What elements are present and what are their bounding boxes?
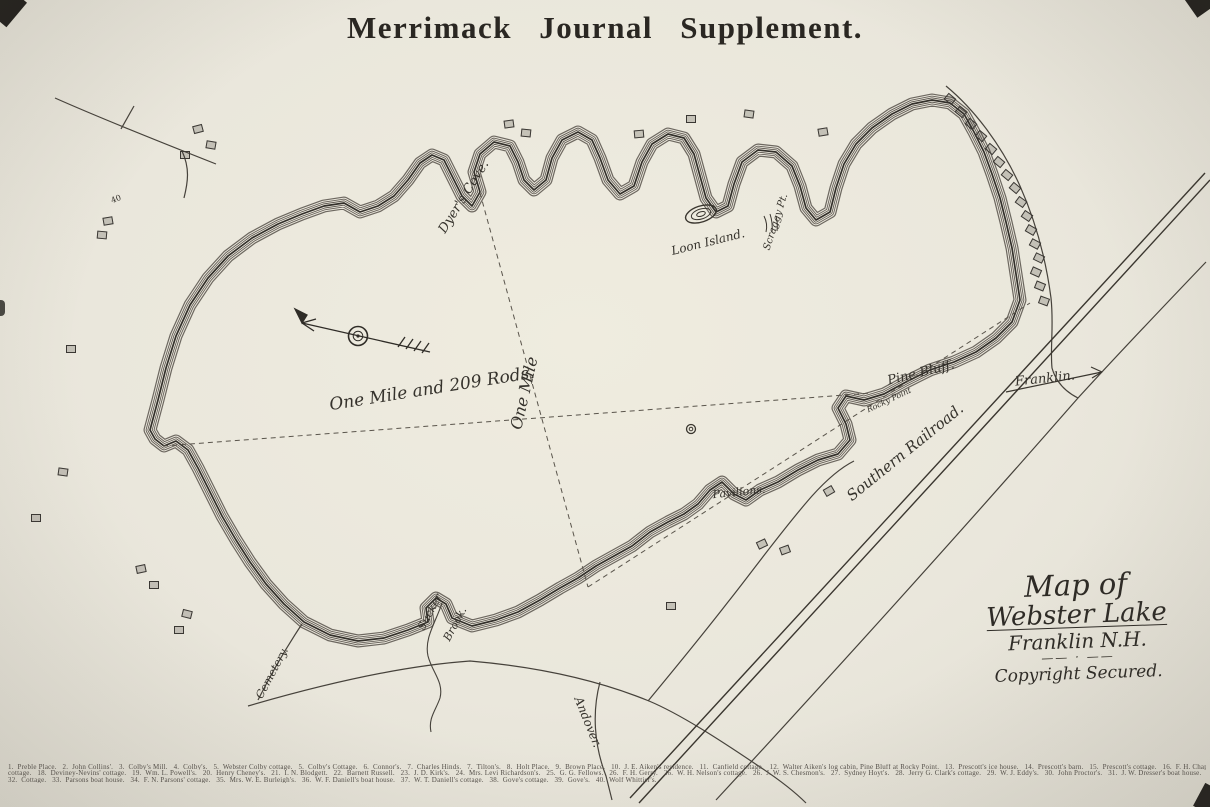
lake-outline <box>150 100 1020 641</box>
cartouche: Map of Webster Lake Franklin N.H. —— · —… <box>950 566 1204 691</box>
map-page: Merrimack Journal Supplement. Dyer's Cov… <box>0 0 1210 807</box>
building-marker <box>174 626 184 634</box>
building-marker <box>97 231 108 240</box>
building-marker <box>57 467 68 476</box>
building-marker <box>686 115 696 123</box>
building-marker <box>666 602 676 610</box>
building-marker <box>66 345 76 353</box>
building-marker <box>521 128 532 137</box>
building-marker <box>31 514 41 522</box>
compass-rose <box>295 309 430 353</box>
building-marker <box>817 127 828 137</box>
legend-line-3: 32. Cottage. 33. Parsons boat house. 34.… <box>8 777 1206 783</box>
building-marker <box>180 151 190 159</box>
small-island <box>687 425 696 434</box>
building-marker <box>634 130 645 139</box>
building-marker <box>102 216 113 226</box>
building-marker <box>205 140 216 150</box>
map-legend: 1. Preble Place. 2. John Collins'. 3. Co… <box>8 764 1206 783</box>
building-marker <box>503 119 514 128</box>
building-marker <box>149 581 159 589</box>
page-title: Merrimack Journal Supplement. <box>0 10 1210 46</box>
building-marker <box>743 109 754 118</box>
paper-edge-mark <box>0 300 5 316</box>
